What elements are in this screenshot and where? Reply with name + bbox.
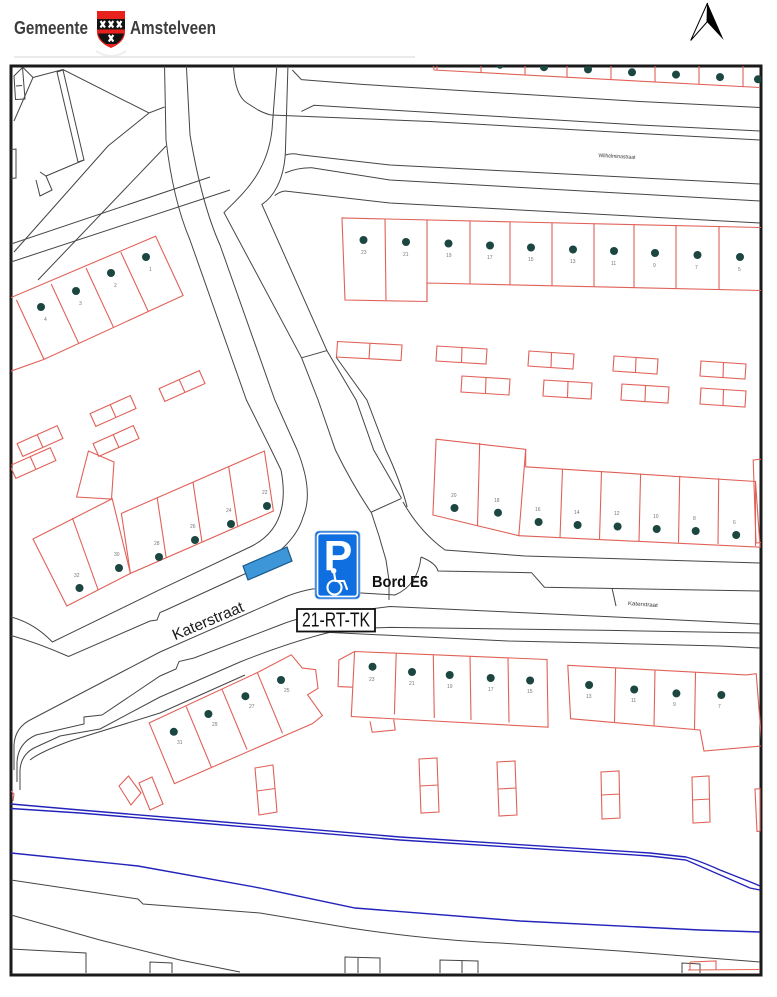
svg-text:15: 15 xyxy=(528,257,534,263)
svg-text:19: 19 xyxy=(446,253,452,259)
svg-text:18: 18 xyxy=(494,498,500,504)
svg-text:28: 28 xyxy=(154,541,160,547)
svg-text:P: P xyxy=(324,533,353,581)
svg-text:3: 3 xyxy=(79,301,82,307)
svg-text:21: 21 xyxy=(403,252,409,258)
svg-text:Bord E6: Bord E6 xyxy=(372,574,428,591)
svg-text:25: 25 xyxy=(284,688,290,694)
svg-text:21-RT-TK: 21-RT-TK xyxy=(302,610,371,632)
svg-text:2: 2 xyxy=(114,283,117,289)
svg-text:29: 29 xyxy=(212,722,218,728)
svg-text:31: 31 xyxy=(177,740,183,746)
svg-text:9: 9 xyxy=(653,263,656,269)
svg-text:17: 17 xyxy=(487,255,493,261)
svg-text:8: 8 xyxy=(693,516,696,522)
svg-text:11: 11 xyxy=(611,261,616,267)
svg-text:26: 26 xyxy=(190,524,196,530)
svg-text:7: 7 xyxy=(718,704,721,710)
svg-text:32: 32 xyxy=(74,573,80,579)
svg-text:21: 21 xyxy=(409,681,415,687)
svg-text:10: 10 xyxy=(653,514,659,520)
svg-text:5: 5 xyxy=(738,267,741,273)
svg-text:22: 22 xyxy=(262,490,268,496)
svg-text:6: 6 xyxy=(733,520,736,526)
svg-text:12: 12 xyxy=(614,511,620,517)
svg-text:24: 24 xyxy=(226,508,232,514)
svg-text:1: 1 xyxy=(149,267,152,273)
svg-text:15: 15 xyxy=(527,689,533,695)
svg-text:13: 13 xyxy=(570,259,576,265)
svg-text:17: 17 xyxy=(488,687,494,693)
svg-text:16: 16 xyxy=(535,507,541,513)
svg-text:27: 27 xyxy=(249,704,255,710)
svg-text:23: 23 xyxy=(369,677,375,683)
svg-text:7: 7 xyxy=(695,265,698,271)
svg-text:13: 13 xyxy=(586,694,592,700)
svg-text:19: 19 xyxy=(447,684,453,690)
svg-text:4: 4 xyxy=(44,317,47,323)
svg-text:30: 30 xyxy=(114,552,120,558)
svg-text:Gemeente: Gemeente xyxy=(14,18,88,38)
svg-text:9: 9 xyxy=(673,702,676,708)
svg-text:20: 20 xyxy=(451,493,457,499)
svg-text:11: 11 xyxy=(631,698,636,704)
svg-text:Amstelveen: Amstelveen xyxy=(130,18,216,38)
svg-text:23: 23 xyxy=(361,250,367,256)
svg-text:14: 14 xyxy=(574,510,580,516)
